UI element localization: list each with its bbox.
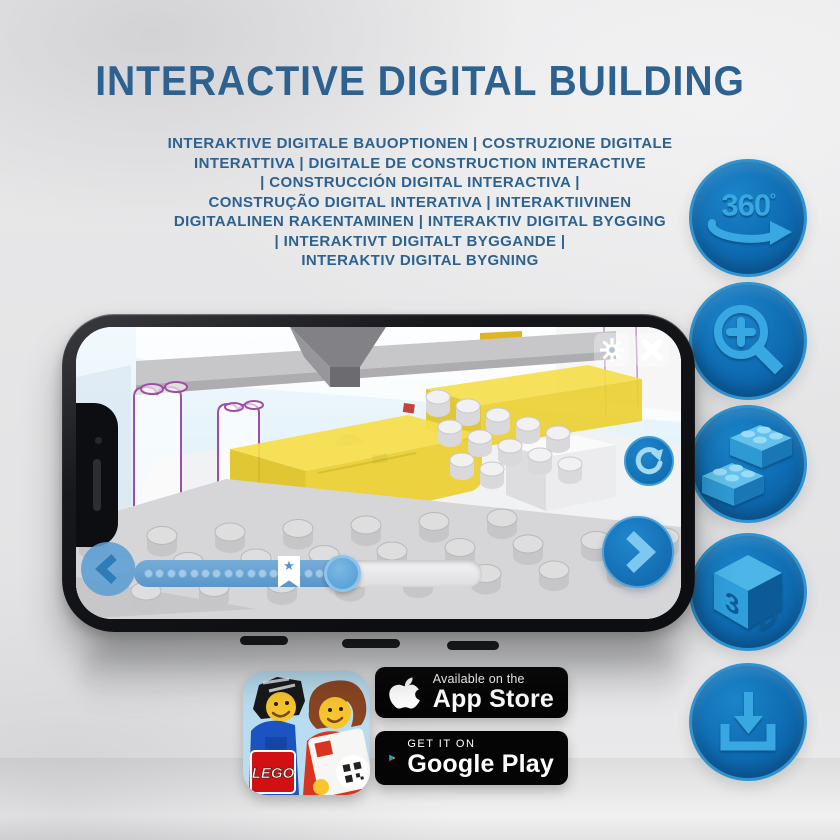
360-arrow-icon <box>704 219 792 249</box>
subtitle-line: DIGITAALINEN RAKENTAMINEN | INTERAKTIV D… <box>120 212 720 232</box>
progress-dot <box>247 569 256 578</box>
feature-3d-button[interactable]: 3 D <box>689 533 807 651</box>
feature-360-button[interactable]: 360º <box>689 159 807 277</box>
google-play-icon <box>389 740 395 776</box>
next-step-button[interactable] <box>602 516 674 588</box>
previous-step-button[interactable] <box>81 542 135 596</box>
progress-dot <box>235 569 244 578</box>
google-play-badge-line1: GET IT ON <box>407 739 554 751</box>
progress-dot <box>167 569 176 578</box>
slider-thumb[interactable] <box>324 555 361 592</box>
progress-dot <box>190 569 199 578</box>
build-progress-slider[interactable]: ★ <box>134 560 482 587</box>
settings-button[interactable] <box>594 333 630 367</box>
subtitle-line: INTERATTIVA | DIGITALE DE CONSTRUCTION I… <box>120 154 720 174</box>
google-play-badge-line2: Google Play <box>407 751 554 777</box>
feature-bricks-button[interactable] <box>689 405 807 523</box>
phone-side-button <box>342 639 400 648</box>
progress-dot <box>269 569 278 578</box>
chevron-left-icon <box>91 550 125 588</box>
feature-zoom-button[interactable] <box>689 282 807 400</box>
zoom-in-icon <box>705 298 791 384</box>
lego-logo: LEGO <box>251 751 295 793</box>
progress-dot <box>155 569 164 578</box>
rotate-view-button[interactable] <box>624 436 674 486</box>
rotate-icon <box>633 445 665 477</box>
lego-bricks-icon <box>700 418 796 510</box>
360-rotate-icon: 360º <box>721 187 774 218</box>
progress-dot <box>212 569 221 578</box>
subtitle-line: | CONSTRUCCIÓN DIGITAL INTERACTIVA | <box>120 173 720 193</box>
earpiece-speaker <box>93 459 101 511</box>
subtitle-line: INTERAKTIV DIGITAL BYGNING <box>120 251 720 271</box>
close-icon <box>641 339 663 361</box>
phone-notch <box>76 403 118 547</box>
phone-screen: ★ <box>76 327 681 619</box>
progress-dot <box>315 569 324 578</box>
progress-dot <box>201 569 210 578</box>
subtitle-line: CONSTRUÇÃO DIGITAL INTERATIVA | INTERAKT… <box>120 193 720 213</box>
download-icon <box>705 680 791 764</box>
progress-dot <box>178 569 187 578</box>
3d-cube-icon: 3 D <box>703 547 793 637</box>
subtitle-line: INTERAKTIVE DIGITALE BAUOPTIONEN | COSTR… <box>120 134 720 154</box>
subtitle-line: | INTERAKTIVT DIGITALT BYGGANDE | <box>120 232 720 252</box>
progress-dot <box>258 569 267 578</box>
page-title: INTERACTIVE DIGITAL BUILDING <box>29 57 810 105</box>
progress-dot <box>224 569 233 578</box>
progress-dot <box>144 569 153 578</box>
phone-mockup: ★ <box>62 314 695 632</box>
slider-fill <box>134 560 350 587</box>
feature-download-button[interactable] <box>689 663 807 781</box>
subtitle-multilingual: INTERAKTIVE DIGITALE BAUOPTIONEN | COSTR… <box>120 134 720 271</box>
close-button[interactable] <box>634 333 670 367</box>
phone-side-button <box>240 636 288 645</box>
phone-reflection <box>80 640 680 710</box>
progress-dot <box>304 569 313 578</box>
phone-side-button <box>447 641 499 650</box>
chevron-right-icon <box>616 527 660 577</box>
svg-text:LEGO: LEGO <box>252 765 295 782</box>
google-play-badge[interactable]: GET IT ON Google Play <box>375 731 568 785</box>
front-camera <box>95 437 102 444</box>
gear-icon <box>600 338 624 362</box>
